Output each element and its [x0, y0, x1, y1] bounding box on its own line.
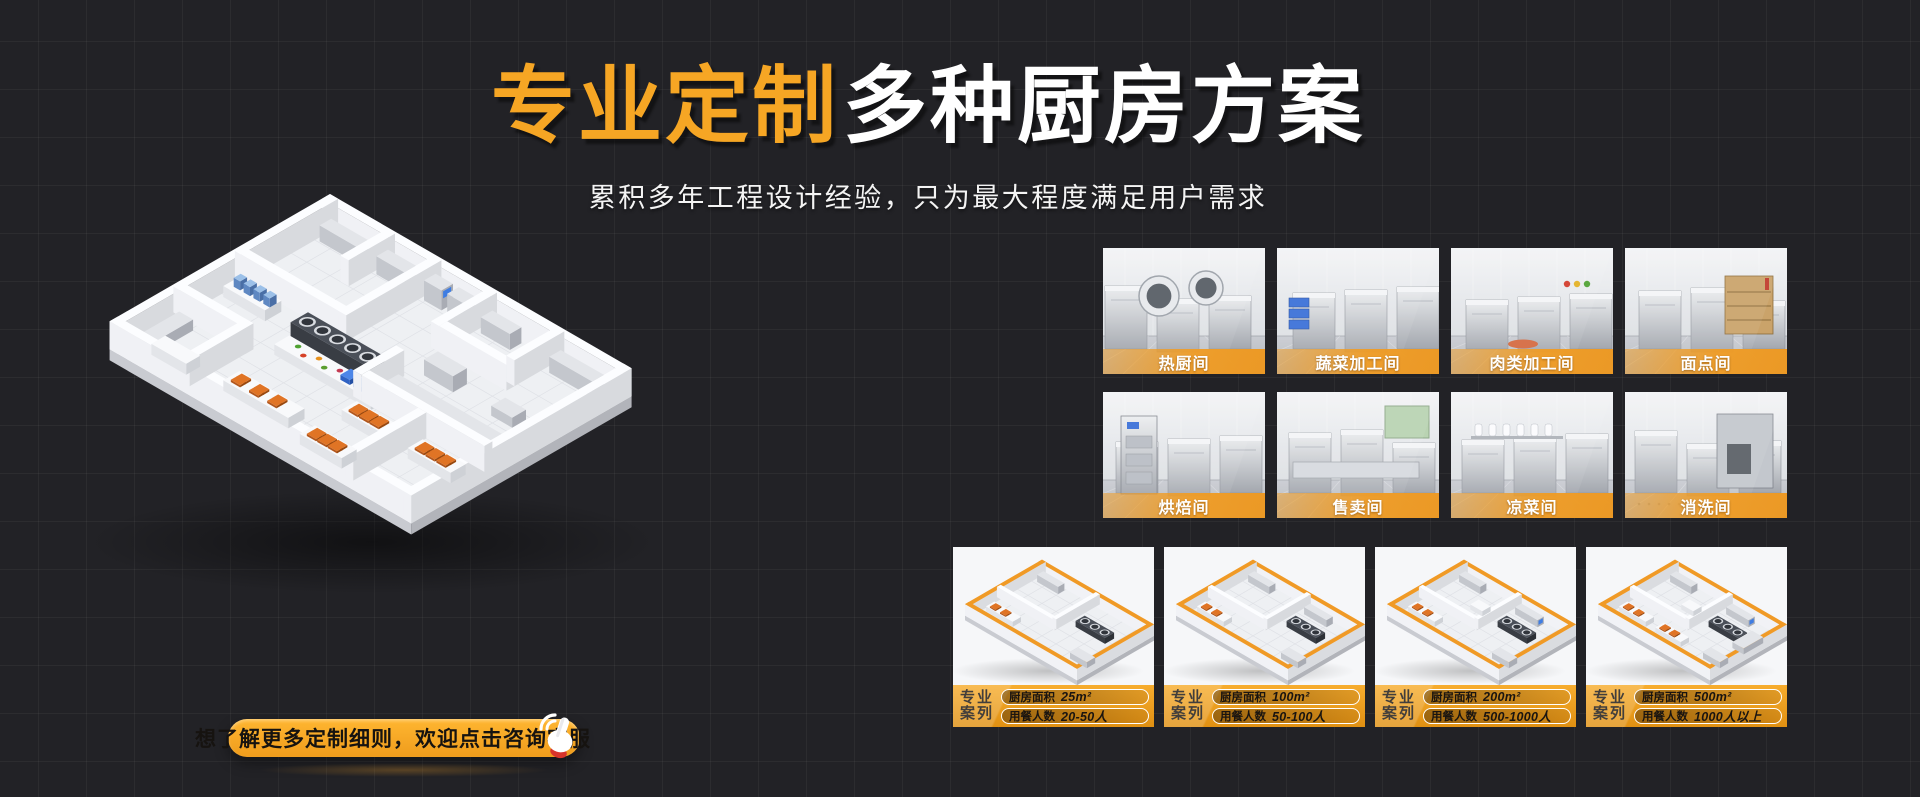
page-title: 专业定制多种厨房方案 — [0, 62, 1856, 150]
diner-count-pill: 用餐人数 50-100人 — [1212, 708, 1360, 724]
room-label: 消洗间 — [1625, 493, 1787, 518]
room-tile-1[interactable]: 热厨间 — [1103, 248, 1265, 374]
room-tile-7[interactable]: 凉菜间 — [1451, 392, 1613, 518]
room-tile-4[interactable]: 面点间 — [1625, 248, 1787, 374]
kitchen-area-pill: 厨房面积 200m² — [1423, 689, 1571, 705]
case-card-1[interactable]: 专业 案列 厨房面积 25m² 用餐人数 20-50人 — [953, 547, 1154, 727]
title-rest: 多种厨房方案 — [843, 59, 1365, 153]
case-info-bar: 专业 案列 厨房面积 25m² 用餐人数 20-50人 — [953, 685, 1154, 727]
case-info-bar: 专业 案列 厨房面积 100m² 用餐人数 50-100人 — [1164, 685, 1365, 727]
diner-count-pill: 用餐人数 1000人以上 — [1634, 708, 1782, 724]
case-floorplan-illustration — [1586, 547, 1787, 685]
click-hand-icon — [534, 708, 584, 762]
kitchen-solutions-banner: { "hero": { "title_highlight": "专业定制", "… — [0, 0, 1920, 797]
case-floorplan-illustration — [1164, 547, 1365, 685]
diner-count-pill: 用餐人数 500-1000人 — [1423, 708, 1571, 724]
room-tile-5[interactable]: 烘焙间 — [1103, 392, 1265, 518]
case-card-3[interactable]: 专业 案列 厨房面积 200m² 用餐人数 500-1000人 — [1375, 547, 1576, 727]
title-highlight: 专业定制 — [491, 59, 839, 153]
case-card-4[interactable]: 专业 案列 厨房面积 500m² 用餐人数 1000人以上 — [1586, 547, 1787, 727]
kitchen-area-pill: 厨房面积 100m² — [1212, 689, 1360, 705]
case-floorplan-illustration — [1375, 547, 1576, 685]
case-card-2[interactable]: 专业 案列 厨房面积 100m² 用餐人数 50-100人 — [1164, 547, 1365, 727]
case-gallery: 专业 案列 厨房面积 25m² 用餐人数 20-50人 专业 案列 — [953, 547, 1787, 727]
case-tag: 专业 案列 — [1593, 690, 1627, 722]
case-info-bar: 专业 案列 厨房面积 200m² 用餐人数 500-1000人 — [1375, 685, 1576, 727]
kitchen-floorplan-illustration — [92, 150, 682, 655]
room-label: 蔬菜加工间 — [1277, 349, 1439, 374]
room-gallery: 热厨间 蔬菜加工间 肉类加工间 面点间 烘焙间 售卖间 凉菜间 消洗间 — [1103, 248, 1787, 518]
case-tag: 专业 案列 — [1382, 690, 1416, 722]
case-floorplan-illustration — [953, 547, 1154, 685]
diner-count-pill: 用餐人数 20-50人 — [1001, 708, 1149, 724]
kitchen-area-pill: 厨房面积 25m² — [1001, 689, 1149, 705]
room-label: 售卖间 — [1277, 493, 1439, 518]
room-label: 面点间 — [1625, 349, 1787, 374]
case-tag: 专业 案列 — [960, 690, 994, 722]
kitchen-area-pill: 厨房面积 500m² — [1634, 689, 1782, 705]
room-label: 凉菜间 — [1451, 493, 1613, 518]
case-tag: 专业 案列 — [1171, 690, 1205, 722]
room-label: 肉类加工间 — [1451, 349, 1613, 374]
room-label: 热厨间 — [1103, 349, 1265, 374]
case-info-bar: 专业 案列 厨房面积 500m² 用餐人数 1000人以上 — [1586, 685, 1787, 727]
room-label: 烘焙间 — [1103, 493, 1265, 518]
room-tile-2[interactable]: 蔬菜加工间 — [1277, 248, 1439, 374]
cta-button[interactable]: 想了解更多定制细则，欢迎点击咨询客服 — [228, 719, 580, 757]
room-tile-3[interactable]: 肉类加工间 — [1451, 248, 1613, 374]
room-tile-8[interactable]: 消洗间 — [1625, 392, 1787, 518]
room-tile-6[interactable]: 售卖间 — [1277, 392, 1439, 518]
